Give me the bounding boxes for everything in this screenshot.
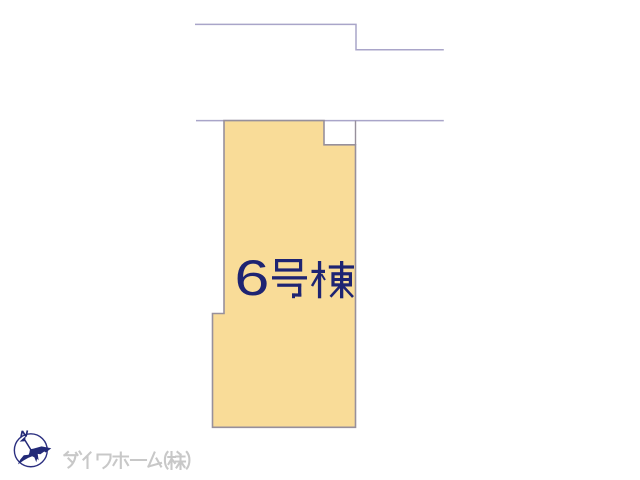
svg-text:6: 6: [234, 251, 269, 306]
